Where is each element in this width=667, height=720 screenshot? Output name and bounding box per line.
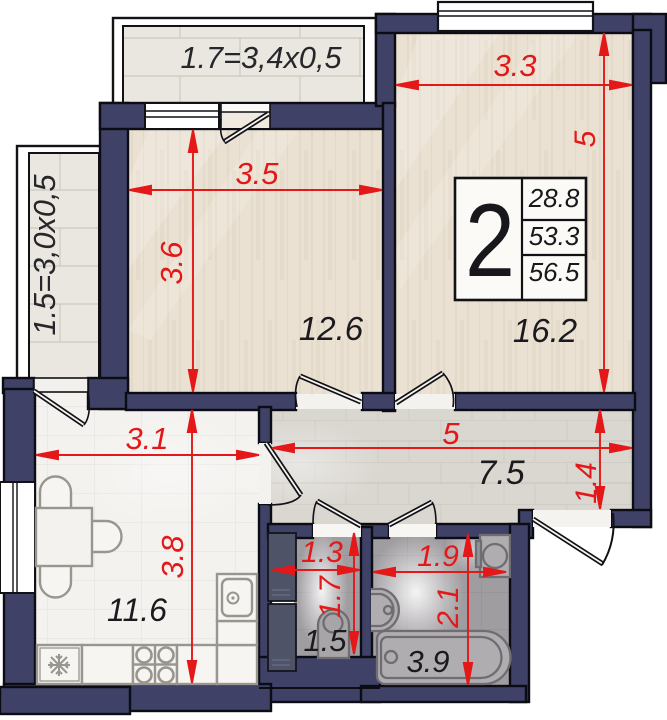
svg-text:3.1: 3.1 [125, 421, 168, 456]
svg-text:3.8: 3.8 [155, 535, 190, 579]
svg-text:11.6: 11.6 [107, 592, 167, 628]
svg-text:3.5: 3.5 [235, 156, 279, 191]
svg-text:1.5=3,0x0,5: 1.5=3,0x0,5 [27, 174, 62, 336]
svg-text:2: 2 [465, 183, 515, 299]
svg-text:12.6: 12.6 [299, 310, 364, 347]
svg-text:3.3: 3.3 [493, 48, 536, 83]
svg-text:16.2: 16.2 [513, 312, 577, 349]
svg-text:5: 5 [569, 130, 602, 147]
svg-text:1.9: 1.9 [417, 540, 459, 573]
svg-text:1.3: 1.3 [301, 536, 343, 569]
svg-text:1.7=3,4x0,5: 1.7=3,4x0,5 [181, 40, 343, 75]
svg-text:7.5: 7.5 [477, 454, 524, 492]
svg-text:1.5: 1.5 [303, 623, 347, 658]
svg-text:1.4: 1.4 [570, 462, 603, 504]
svg-text:3.6: 3.6 [154, 241, 189, 285]
svg-text:3.9: 3.9 [406, 644, 449, 679]
svg-text:2.1: 2.1 [432, 586, 465, 629]
svg-text:5: 5 [442, 416, 460, 451]
svg-text:56.5: 56.5 [529, 257, 580, 287]
svg-text:53.3: 53.3 [529, 221, 580, 251]
svg-text:1.7: 1.7 [314, 575, 347, 618]
svg-text:28.8: 28.8 [528, 183, 580, 213]
